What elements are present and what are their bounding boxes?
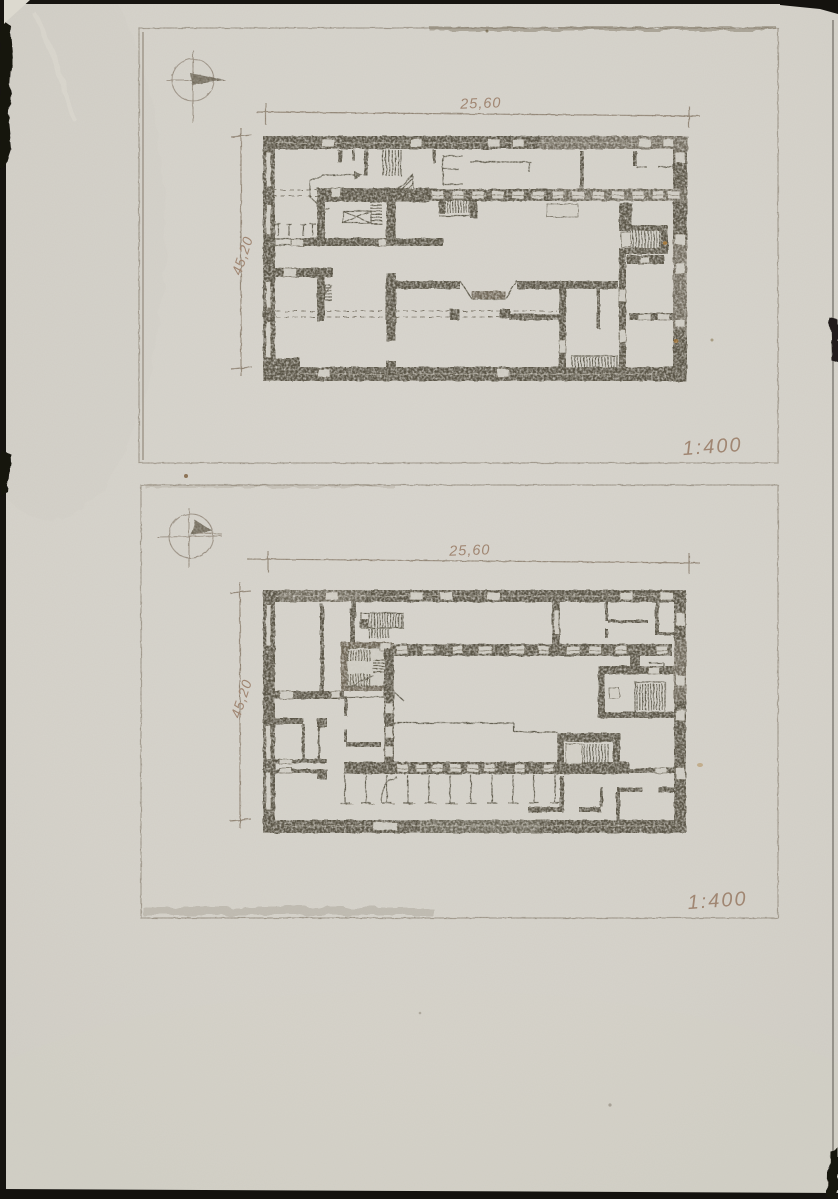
svg-text:25,60: 25,60 bbox=[459, 95, 502, 112]
svg-text:1:400: 1:400 bbox=[687, 888, 748, 914]
svg-text:1:400: 1:400 bbox=[682, 434, 743, 460]
svg-text:25,60: 25,60 bbox=[448, 542, 491, 559]
